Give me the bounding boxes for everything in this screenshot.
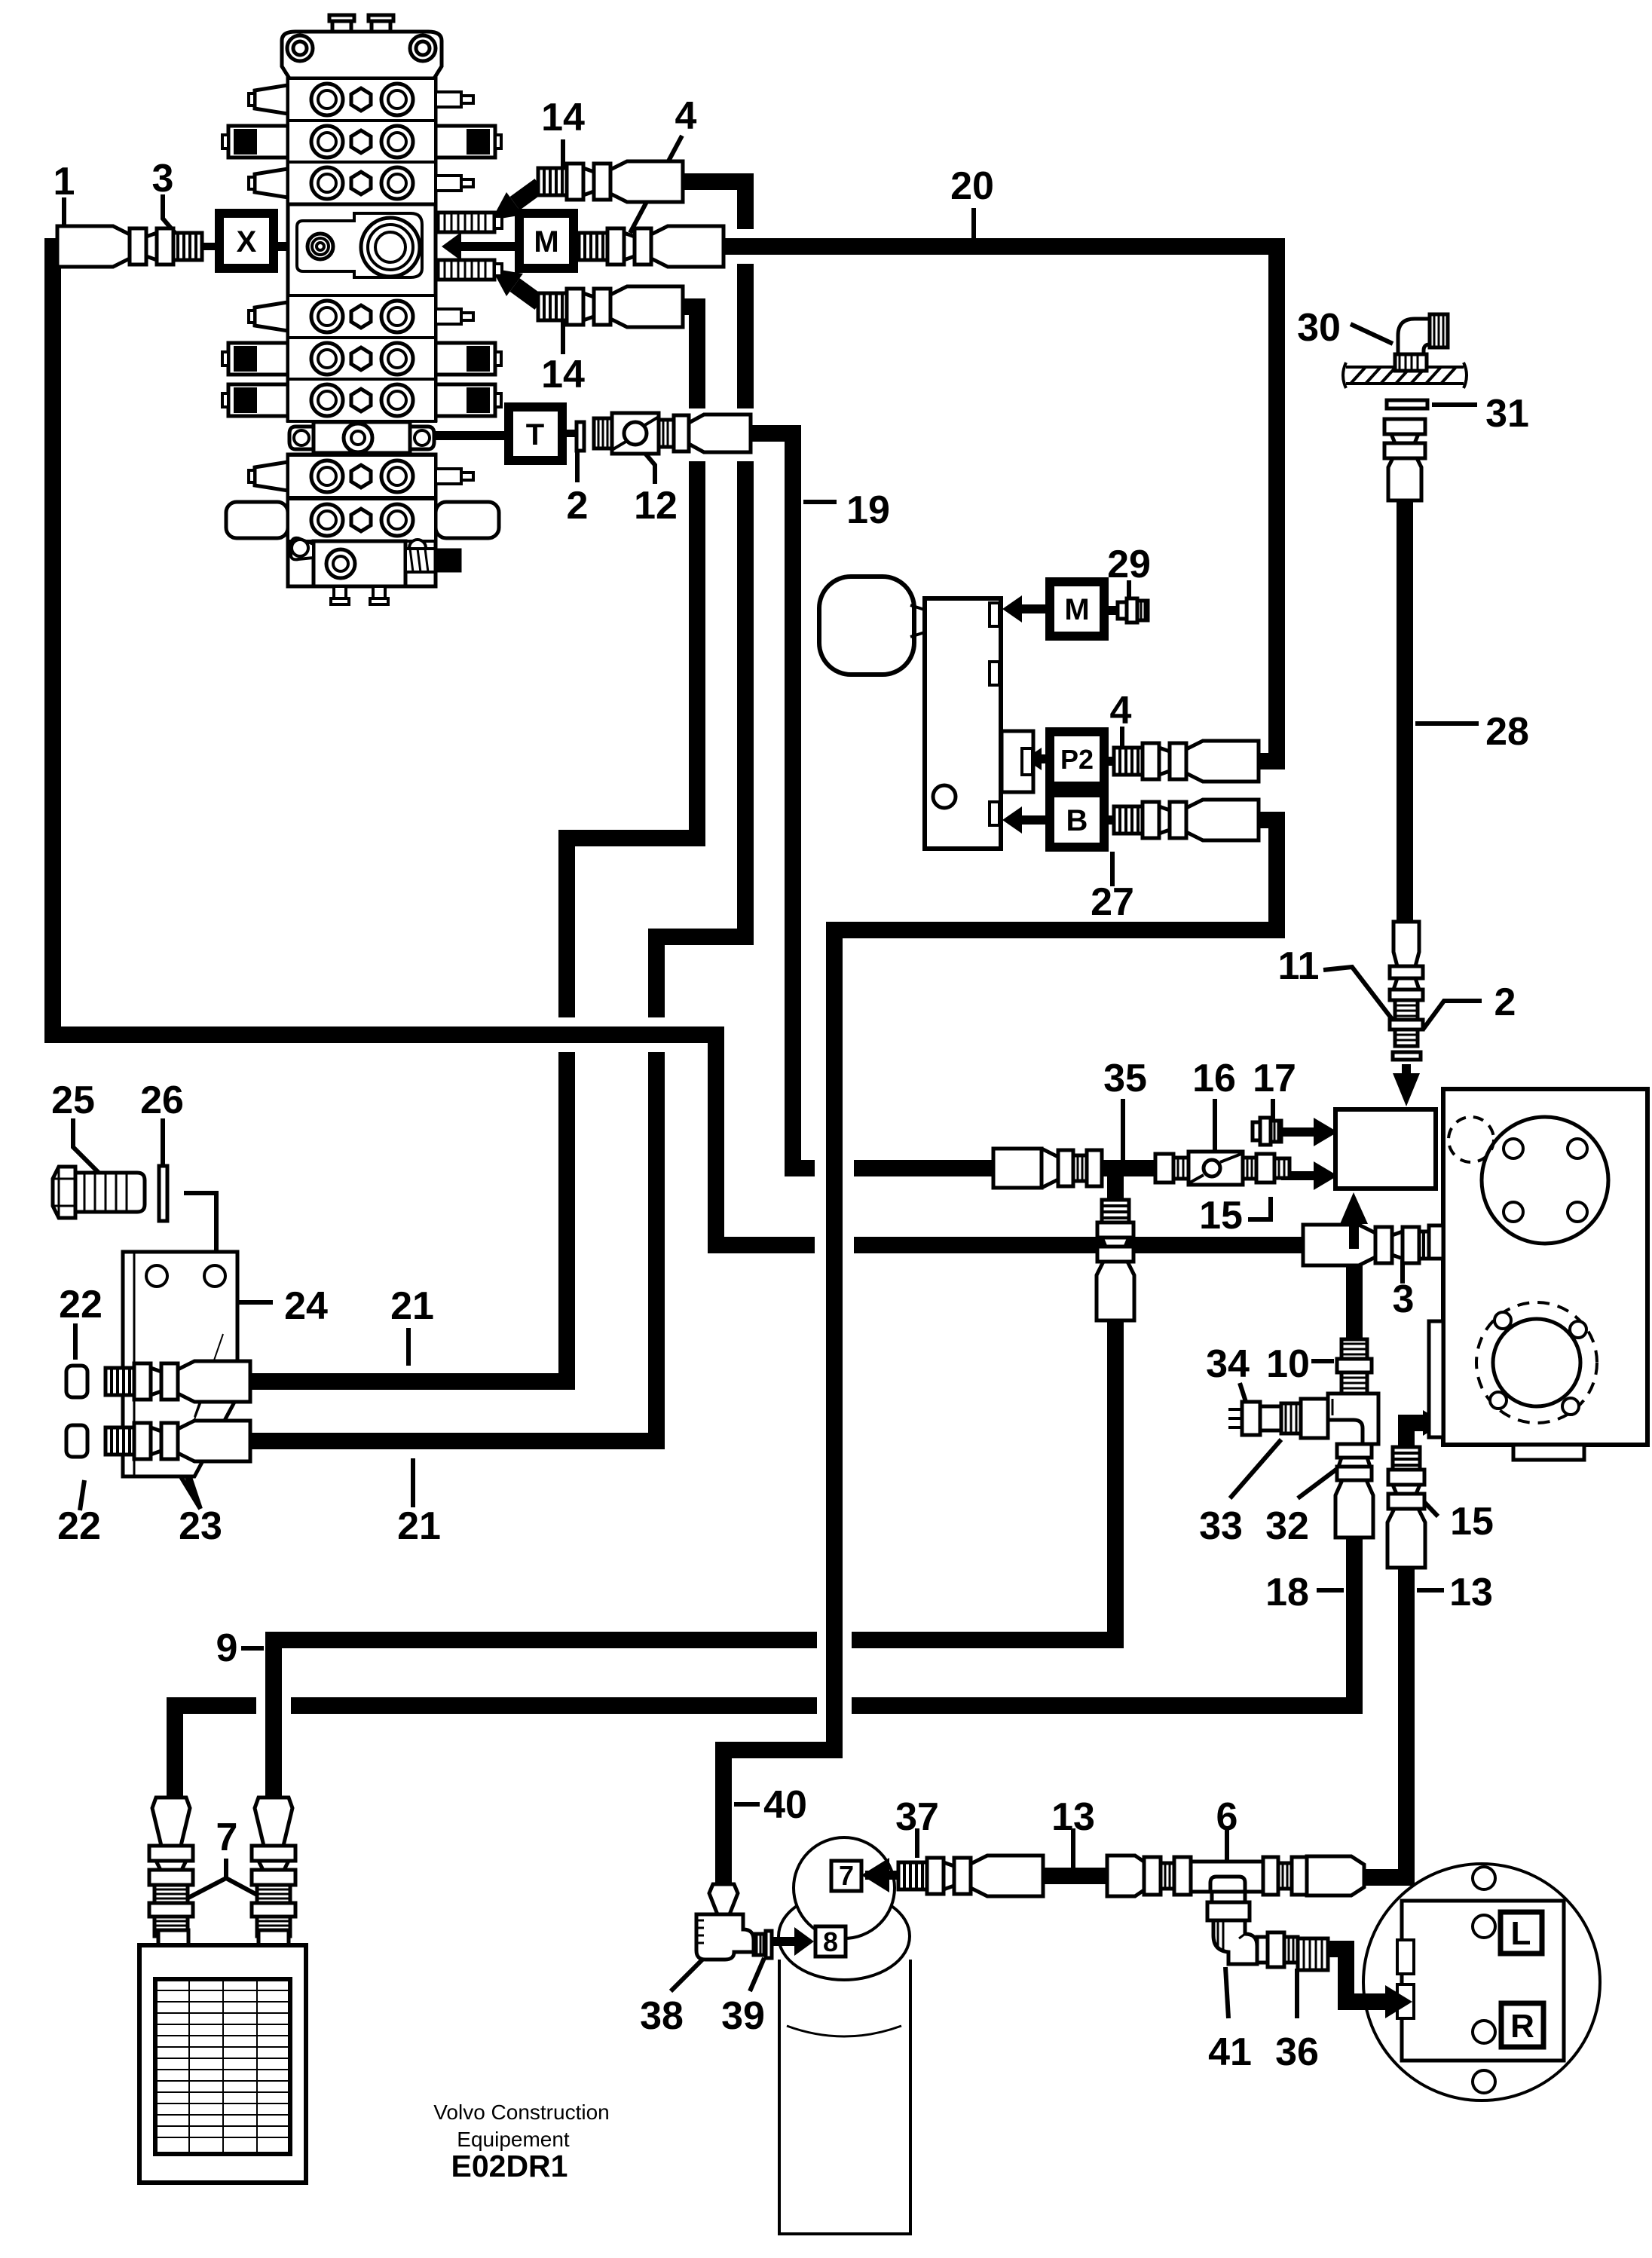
svg-text:25: 25: [51, 1079, 95, 1122]
svg-text:34: 34: [1206, 1342, 1250, 1386]
svg-text:Volvo Construction: Volvo Construction: [433, 2100, 609, 2124]
svg-text:26: 26: [140, 1079, 184, 1122]
svg-text:2: 2: [567, 484, 589, 528]
svg-text:12: 12: [634, 484, 678, 528]
svg-text:14: 14: [541, 96, 585, 139]
svg-text:39: 39: [721, 1994, 765, 2038]
svg-text:18: 18: [1265, 1571, 1309, 1614]
svg-text:30: 30: [1297, 306, 1341, 350]
svg-text:6: 6: [1216, 1795, 1238, 1839]
svg-text:M: M: [1064, 593, 1089, 626]
svg-text:23: 23: [179, 1504, 222, 1548]
svg-text:15: 15: [1199, 1194, 1243, 1238]
svg-text:Equipement: Equipement: [457, 2128, 570, 2151]
svg-text:E02DR1: E02DR1: [451, 2149, 568, 2183]
svg-text:16: 16: [1192, 1057, 1236, 1100]
svg-text:8: 8: [823, 1926, 838, 1957]
svg-text:4: 4: [675, 94, 697, 138]
svg-text:P2: P2: [1060, 744, 1094, 775]
svg-text:B: B: [1066, 804, 1088, 837]
svg-text:22: 22: [57, 1504, 101, 1548]
svg-text:19: 19: [846, 488, 890, 532]
svg-text:41: 41: [1208, 2030, 1252, 2074]
svg-text:29: 29: [1107, 543, 1151, 586]
svg-text:20: 20: [950, 164, 994, 208]
svg-text:T: T: [526, 418, 544, 451]
svg-text:13: 13: [1051, 1795, 1095, 1839]
svg-text:40: 40: [763, 1783, 807, 1827]
svg-text:33: 33: [1199, 1504, 1243, 1548]
svg-text:13: 13: [1449, 1571, 1493, 1614]
svg-text:4: 4: [1110, 689, 1132, 733]
svg-text:11: 11: [1278, 944, 1320, 988]
svg-text:M: M: [534, 225, 558, 259]
svg-text:27: 27: [1091, 880, 1134, 924]
svg-text:17: 17: [1253, 1057, 1296, 1100]
svg-text:L: L: [1511, 1915, 1531, 1952]
svg-text:1: 1: [54, 160, 75, 203]
svg-text:28: 28: [1485, 710, 1529, 754]
svg-text:X: X: [237, 225, 257, 259]
svg-text:32: 32: [1265, 1504, 1309, 1548]
svg-text:3: 3: [152, 157, 174, 200]
svg-text:37: 37: [895, 1795, 939, 1839]
svg-text:24: 24: [284, 1284, 328, 1328]
svg-text:3: 3: [1393, 1277, 1415, 1321]
svg-text:R: R: [1510, 2008, 1534, 2045]
svg-text:21: 21: [397, 1504, 441, 1548]
svg-text:22: 22: [59, 1283, 102, 1326]
svg-text:9: 9: [216, 1626, 238, 1670]
svg-text:7: 7: [216, 1816, 238, 1859]
svg-text:31: 31: [1485, 392, 1529, 436]
svg-text:10: 10: [1266, 1342, 1310, 1386]
svg-text:2: 2: [1494, 981, 1516, 1024]
svg-text:7: 7: [839, 1860, 854, 1891]
svg-text:15: 15: [1450, 1500, 1494, 1544]
svg-text:35: 35: [1103, 1057, 1147, 1100]
svg-text:38: 38: [640, 1994, 684, 2038]
svg-text:21: 21: [390, 1284, 434, 1328]
svg-text:36: 36: [1275, 2030, 1319, 2074]
svg-text:14: 14: [541, 353, 585, 396]
